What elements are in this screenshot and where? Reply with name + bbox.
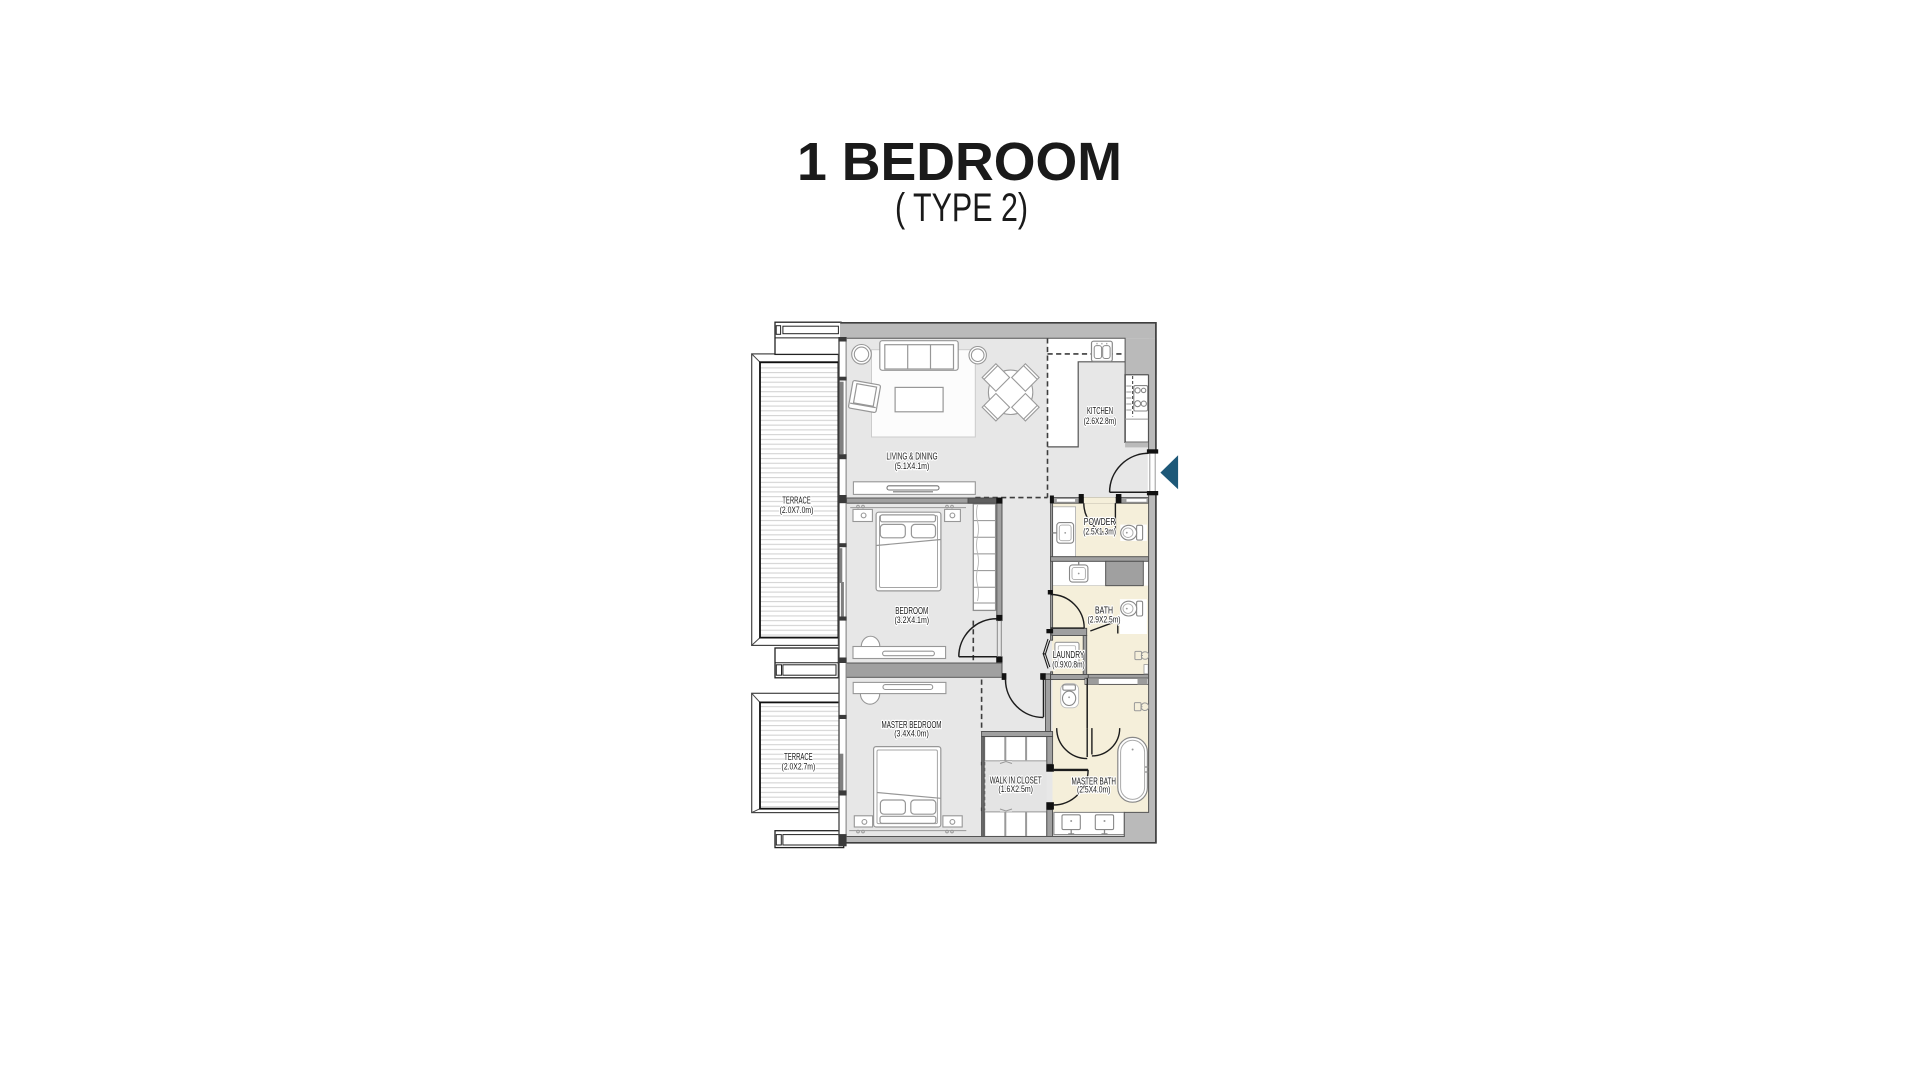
svg-text:(3.2X4.1m): (3.2X4.1m) (894, 614, 929, 625)
svg-text:(2.5X4.0m): (2.5X4.0m) (1077, 784, 1110, 795)
svg-text:(5.1X4.1m): (5.1X4.1m) (895, 460, 930, 471)
svg-text:(2.9X2.5m): (2.9X2.5m) (1088, 614, 1121, 625)
svg-text:(1.6X2.5m): (1.6X2.5m) (998, 783, 1033, 794)
svg-text:( TYPE 2): ( TYPE 2) (895, 186, 1028, 230)
svg-text:(2.0X7.0m): (2.0X7.0m) (780, 504, 814, 515)
svg-text:1 BEDROOM: 1 BEDROOM (797, 132, 1122, 192)
svg-text:(2.0X2.7m): (2.0X2.7m) (782, 761, 816, 772)
svg-text:(3.4X4.0m): (3.4X4.0m) (894, 727, 929, 738)
svg-text:(2.5X1.3m): (2.5X1.3m) (1083, 525, 1116, 536)
svg-text:(2.6X2.8m): (2.6X2.8m) (1084, 415, 1117, 426)
svg-text:(0.9X0.8m): (0.9X0.8m) (1052, 658, 1085, 669)
